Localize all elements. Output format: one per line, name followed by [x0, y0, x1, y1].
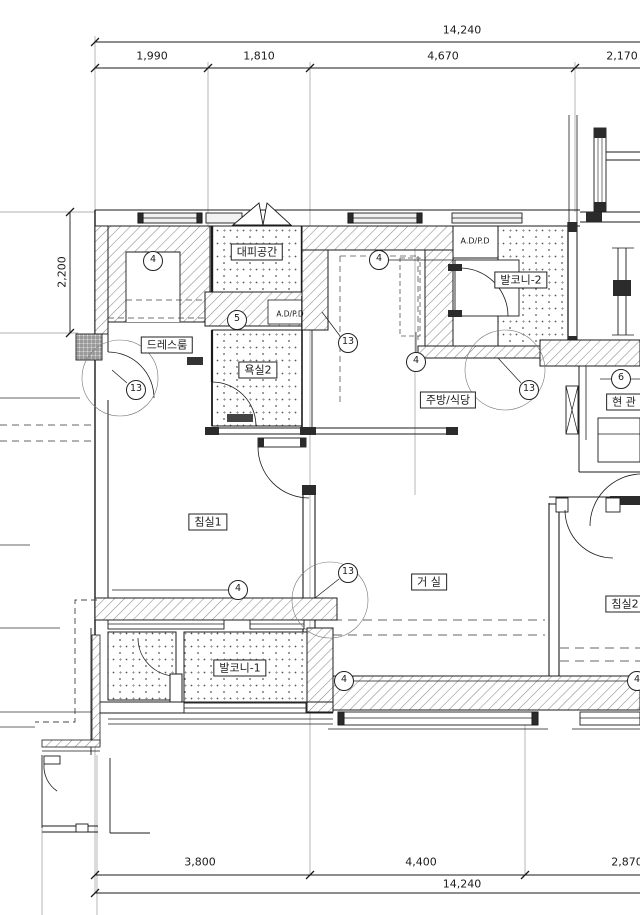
dim-top-overall: 14,240: [443, 24, 482, 37]
dim-top-seg2: 1,810: [243, 50, 275, 63]
room-label-dress: 드레스룸: [141, 337, 193, 354]
dim-top-seg1: 1,990: [136, 50, 168, 63]
keynote-13-balcony2: 13: [519, 380, 539, 400]
keynote-6-entry: 6: [611, 369, 631, 389]
keynote-13-left: 13: [126, 380, 146, 400]
keynote-13-kitchen: 13: [338, 333, 358, 353]
keynote-4-closet: 4: [143, 251, 163, 271]
dim-top-seg4: 2,170: [606, 50, 638, 63]
living-zone: [315, 620, 640, 729]
room-label-bed1: 침실1: [188, 514, 227, 531]
adpd-label-top: A.D/P.D: [460, 237, 489, 246]
keynote-4-kitchen-right: 4: [406, 352, 426, 372]
grid-extension-lines: [0, 36, 575, 915]
closet-block: [108, 226, 210, 322]
neighbor-door-arc: [44, 764, 57, 791]
bed1-door-arc: [258, 447, 309, 498]
keynote-5-bath2: 5: [227, 310, 247, 330]
room-label-refuge: 대피공간: [231, 244, 283, 261]
dim-bottom-overall: 14,240: [443, 878, 482, 891]
left-edge-lines: [0, 398, 95, 727]
room-label-balcony1: 발코니-1: [213, 660, 266, 677]
dim-top-seg3: 4,670: [427, 50, 459, 63]
dimension-lines: [66, 38, 640, 897]
room-label-bed2: 침실2: [605, 596, 640, 613]
fridge-dashed: [400, 258, 420, 336]
shoe-cabinet: [598, 418, 640, 462]
floorplan-linework: [0, 0, 640, 915]
dim-bottom-seg2: 4,400: [405, 856, 437, 869]
floor-plan-sheet: 14,240 1,990 1,810 4,670 2,170 2,200 3,8…: [0, 0, 640, 915]
bed2-door-arc: [565, 510, 613, 558]
room-label-kitchen: 주방/식당: [420, 392, 476, 409]
right-mid-window: [612, 248, 634, 335]
room-label-bath2: 욕실2: [238, 362, 277, 379]
keynote-4-bed1: 4: [228, 580, 248, 600]
top-right-exterior: [569, 115, 640, 222]
room-label-balcony2: 발코니-2: [494, 272, 547, 289]
keynote-4-kitchen-top: 4: [369, 250, 389, 270]
dim-bottom-seg1: 3,800: [184, 856, 216, 869]
bed2-wall: [549, 496, 640, 676]
keynote-4-living-left: 4: [334, 671, 354, 691]
keynote-4-living-right: 4: [627, 671, 640, 691]
dim-left-seg1: 2,200: [56, 256, 69, 288]
kitchen-counter-dashed: [340, 256, 418, 404]
adpd-label-small: A.D/P.D: [276, 310, 303, 319]
keynote-13-living: 13: [338, 563, 358, 583]
top-wall: [95, 203, 580, 226]
room-label-living: 거 실: [411, 574, 447, 591]
dim-bottom-seg3: 2,870: [611, 856, 640, 869]
room-label-entry: 현 관: [606, 394, 640, 411]
